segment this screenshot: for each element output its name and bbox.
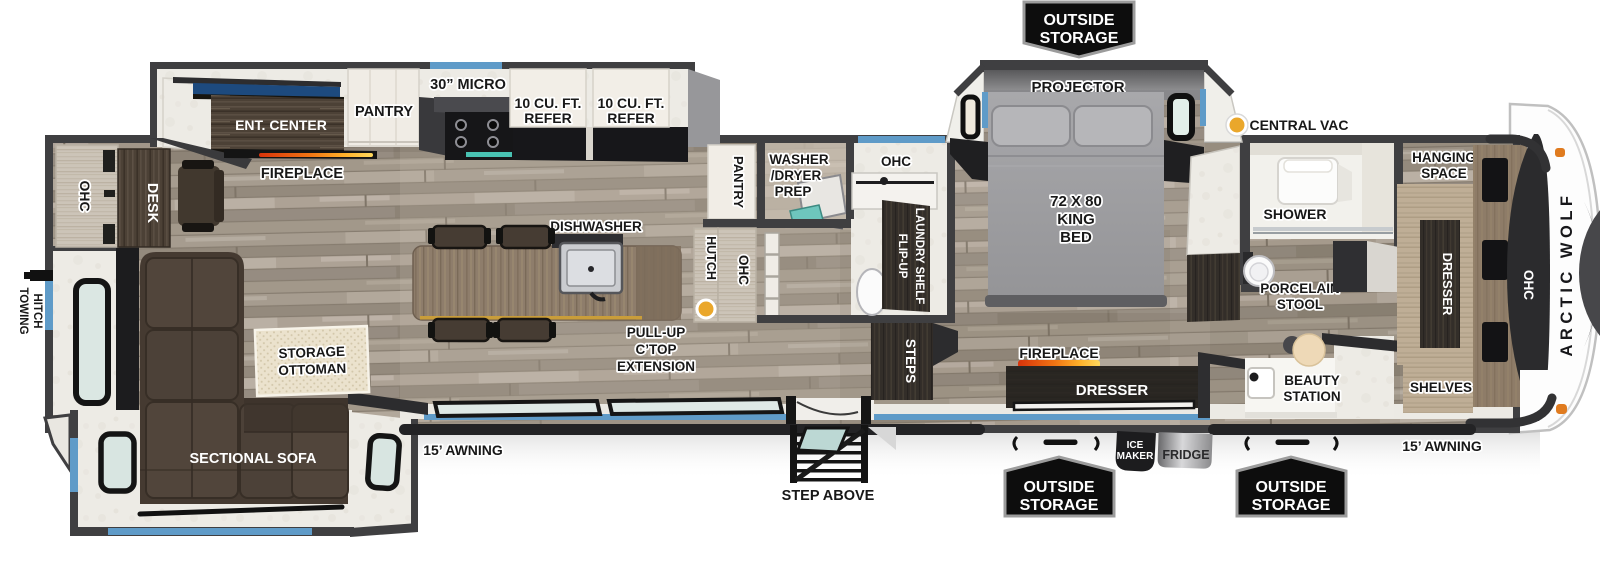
svg-text:PREP: PREP	[775, 184, 812, 199]
svg-text:ARCTIC WOLF: ARCTIC WOLF	[1558, 192, 1576, 357]
svg-text:TOWING: TOWING	[17, 287, 29, 334]
svg-text:STEP ABOVE: STEP ABOVE	[782, 488, 875, 504]
svg-text:DRESSER: DRESSER	[1440, 253, 1455, 316]
svg-text:SHOWER: SHOWER	[1264, 206, 1327, 222]
svg-text:30” MICRO: 30” MICRO	[430, 77, 506, 93]
svg-text:CENTRAL VAC: CENTRAL VAC	[1249, 117, 1348, 133]
svg-text:OHC: OHC	[77, 180, 93, 211]
svg-text:PANTRY: PANTRY	[731, 156, 746, 208]
svg-text:STORAGE: STORAGE	[1252, 497, 1331, 514]
svg-text:FIREPLACE: FIREPLACE	[1019, 345, 1098, 361]
svg-text:SECTIONAL SOFA: SECTIONAL SOFA	[189, 451, 317, 467]
svg-text:KING: KING	[1057, 211, 1095, 228]
svg-text:OUTSIDE: OUTSIDE	[1255, 479, 1326, 496]
svg-text:EXTENSION: EXTENSION	[617, 359, 695, 374]
svg-text:15’ AWNING: 15’ AWNING	[423, 442, 503, 458]
svg-text:ENT. CENTER: ENT. CENTER	[235, 117, 327, 133]
svg-text:SPACE: SPACE	[1421, 166, 1467, 181]
svg-text:STEPS: STEPS	[903, 339, 918, 383]
svg-text:PORCELAIN: PORCELAIN	[1260, 281, 1340, 296]
svg-text:FLIP-UP: FLIP-UP	[896, 234, 908, 279]
svg-text:HITCH: HITCH	[31, 293, 43, 328]
svg-text:DISHWASHER: DISHWASHER	[550, 219, 642, 234]
svg-text:STATION: STATION	[1283, 389, 1340, 404]
svg-text:FRIDGE: FRIDGE	[1162, 448, 1209, 462]
svg-text:STOOL: STOOL	[1277, 297, 1323, 312]
svg-text:FIREPLACE: FIREPLACE	[261, 166, 344, 182]
svg-text:OUTSIDE: OUTSIDE	[1023, 479, 1094, 496]
svg-text:REFER: REFER	[524, 110, 571, 126]
svg-text:OHC: OHC	[1521, 270, 1536, 300]
svg-text:DESK: DESK	[144, 183, 160, 224]
svg-text:STORAGE: STORAGE	[1020, 497, 1099, 514]
svg-text:C’TOP: C’TOP	[635, 342, 676, 357]
svg-text:LAUNDRY SHELF: LAUNDRY SHELF	[913, 208, 925, 304]
svg-text:OTTOMAN: OTTOMAN	[278, 361, 346, 378]
svg-text:BEAUTY: BEAUTY	[1284, 373, 1340, 388]
svg-text:STORAGE: STORAGE	[278, 344, 345, 361]
svg-text:10 CU. FT.: 10 CU. FT.	[515, 95, 582, 111]
svg-text:ICE: ICE	[1127, 440, 1144, 451]
svg-text:OHC: OHC	[881, 154, 911, 169]
svg-text:OHC: OHC	[736, 255, 751, 285]
svg-text:HUTCH: HUTCH	[704, 236, 718, 280]
svg-text:OUTSIDE: OUTSIDE	[1043, 12, 1114, 29]
svg-text:PULL-UP: PULL-UP	[627, 325, 686, 340]
svg-text:REFER: REFER	[607, 110, 654, 126]
svg-text:WASHER: WASHER	[769, 152, 829, 167]
svg-text:DRESSER: DRESSER	[1076, 382, 1149, 399]
svg-text:/DRYER: /DRYER	[771, 168, 822, 183]
svg-text:MAKER: MAKER	[1117, 451, 1154, 462]
svg-text:10 CU. FT.: 10 CU. FT.	[598, 95, 665, 111]
svg-text:PANTRY: PANTRY	[355, 104, 413, 120]
svg-text:SHELVES: SHELVES	[1410, 380, 1472, 395]
svg-text:STORAGE: STORAGE	[1040, 30, 1119, 47]
svg-text:15’ AWNING: 15’ AWNING	[1402, 438, 1482, 454]
svg-text:HANGING: HANGING	[1412, 150, 1476, 165]
svg-text:72 X 80: 72 X 80	[1050, 193, 1102, 210]
svg-text:BED: BED	[1060, 229, 1092, 246]
